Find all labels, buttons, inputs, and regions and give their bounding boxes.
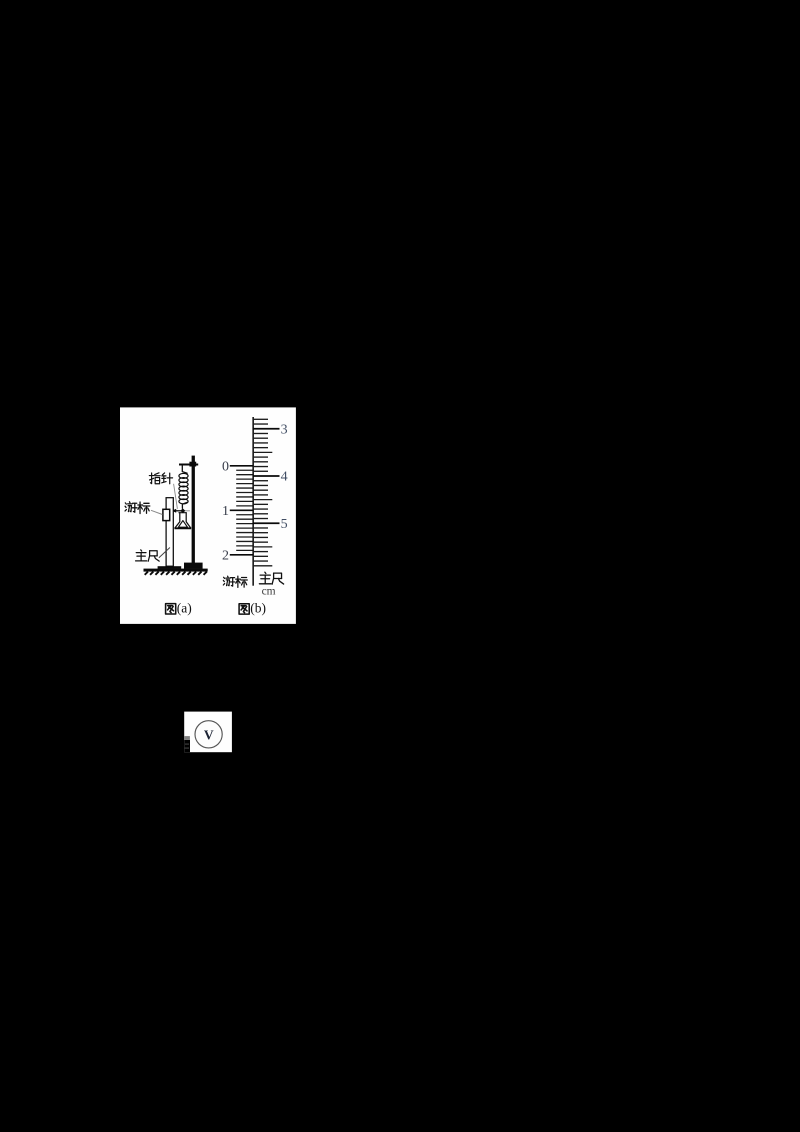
svg-text:5: 5 xyxy=(281,517,288,532)
svg-text:(a): (a) xyxy=(177,601,192,616)
svg-text:3: 3 xyxy=(281,422,288,437)
svg-text:4: 4 xyxy=(281,470,288,485)
svg-text:1: 1 xyxy=(222,504,229,519)
svg-text:0: 0 xyxy=(222,459,229,474)
svg-text:(b): (b) xyxy=(250,601,266,616)
svg-text:2: 2 xyxy=(222,548,229,563)
svg-text:cm: cm xyxy=(262,586,276,598)
svg-text:V: V xyxy=(204,727,214,742)
